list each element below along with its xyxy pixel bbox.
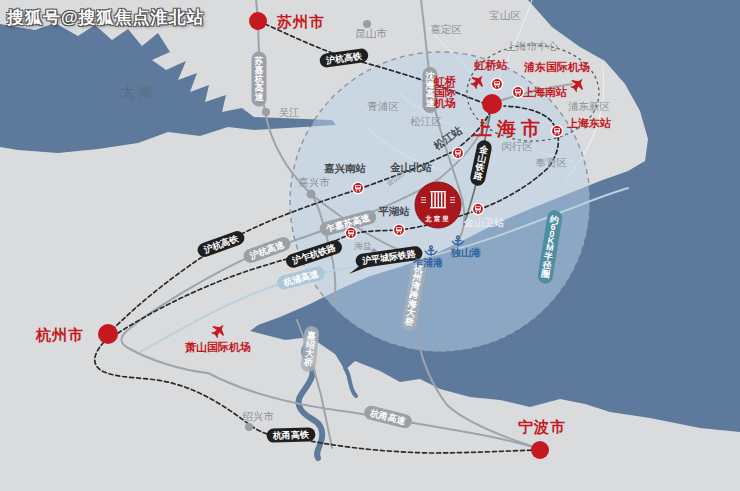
label-minhang-district: 闵行区 (501, 140, 533, 152)
label-jiading-district: 嘉定区 (430, 23, 462, 35)
watermark: 搜狐号@搜狐焦点淮北站 (7, 6, 205, 29)
shanghai-dot (482, 94, 502, 114)
label-pudong-airport: 浦东国际机场 (523, 61, 590, 73)
jiaxing-dot (307, 190, 316, 199)
pill-hangyong-hsr: 杭甬高铁 (266, 427, 315, 443)
label-shanghai-east-station: 上海东站 (566, 117, 611, 129)
label-pudong-new-district: 浦东新区 (568, 100, 611, 112)
ningbo-dot (531, 441, 549, 459)
project-name-label: 北宸里 (424, 215, 451, 223)
svg-text:杭甬高铁: 杭甬高铁 (272, 430, 309, 441)
label-xiaoshan-airport: 萧山国际机场 (185, 341, 251, 354)
station-icon-haiyan-line (345, 227, 356, 238)
label-shanghai-south-station: 上海南站 (522, 86, 567, 98)
region-transit-map: 沪杭高铁苏嘉杭高速沈海高速金山铁路乍嘉苏高速沪杭高铁沪杭高速沪乍杭铁路杭浦高速沪… (0, 0, 740, 491)
label-qingpu-district: 青浦区 (367, 100, 399, 112)
label-pinghu-station: 平湖站 (378, 205, 410, 217)
label-haiyan: 海盐 (354, 241, 372, 251)
label-baoshan-district: 宝山区 (489, 9, 521, 21)
station-icon-jiaxing-south (352, 182, 363, 193)
label-dushan-port: 独山港 (450, 247, 481, 258)
wujiang-dot (262, 108, 270, 116)
label-hangzhou-city: 杭州市 (35, 326, 84, 343)
label-shaoxing-city: 绍兴市 (242, 410, 274, 422)
label-jiaxing-city: 嘉兴市 (298, 176, 330, 188)
label-jinshan-north-station: 金山北站 (389, 161, 433, 173)
shaoxing-dot (245, 423, 253, 431)
station-icon-songjiang (452, 147, 463, 158)
label-zhapu-port: 乍浦港 (412, 257, 443, 268)
label-shanghai-city: 上海市 (472, 118, 545, 139)
pill-sujiahang-expressway: 苏嘉杭高速 (252, 52, 267, 107)
station-icon-pinghu (393, 224, 404, 235)
label-jinshanwei-station: 金山卫站 (463, 217, 505, 228)
label-jiaxing-south-station: 嘉兴南站 (324, 162, 367, 175)
promo-map-stage: 沪杭高铁苏嘉杭高速沈海高速金山铁路乍嘉苏高速沪杭高铁沪杭高速沪乍杭铁路杭浦高速沪… (0, 0, 740, 491)
project-marker: 北宸里 (415, 182, 461, 228)
station-icon-hongqiao (491, 78, 502, 89)
label-shanghai-center: 上海市中心 (506, 40, 559, 52)
label-ningbo-city: 宁波市 (518, 418, 566, 435)
station-icon-shanghai-east (551, 125, 562, 136)
label-fengxian-district: 奉贤区 (535, 156, 567, 168)
label-kunshan-city: 昆山市 (355, 27, 387, 39)
station-icon-shanghai-south (512, 86, 523, 97)
station-icon-jinshanwei (472, 203, 483, 214)
label-hongqiao-station: 虹桥站 (474, 59, 508, 71)
label-hongqiao-airport-line3: 机场 (433, 97, 456, 109)
label-songjiang-district: 松江区 (410, 115, 442, 127)
label-wujiang: 吴江 (279, 106, 301, 118)
svg-text:苏嘉杭高速: 苏嘉杭高速 (254, 56, 265, 102)
label-suzhou-city: 苏州市 (276, 13, 325, 30)
suzhou-dot (249, 12, 267, 30)
hangzhou-dot (98, 324, 118, 344)
label-taihu-lake: 太湖 (121, 84, 155, 100)
